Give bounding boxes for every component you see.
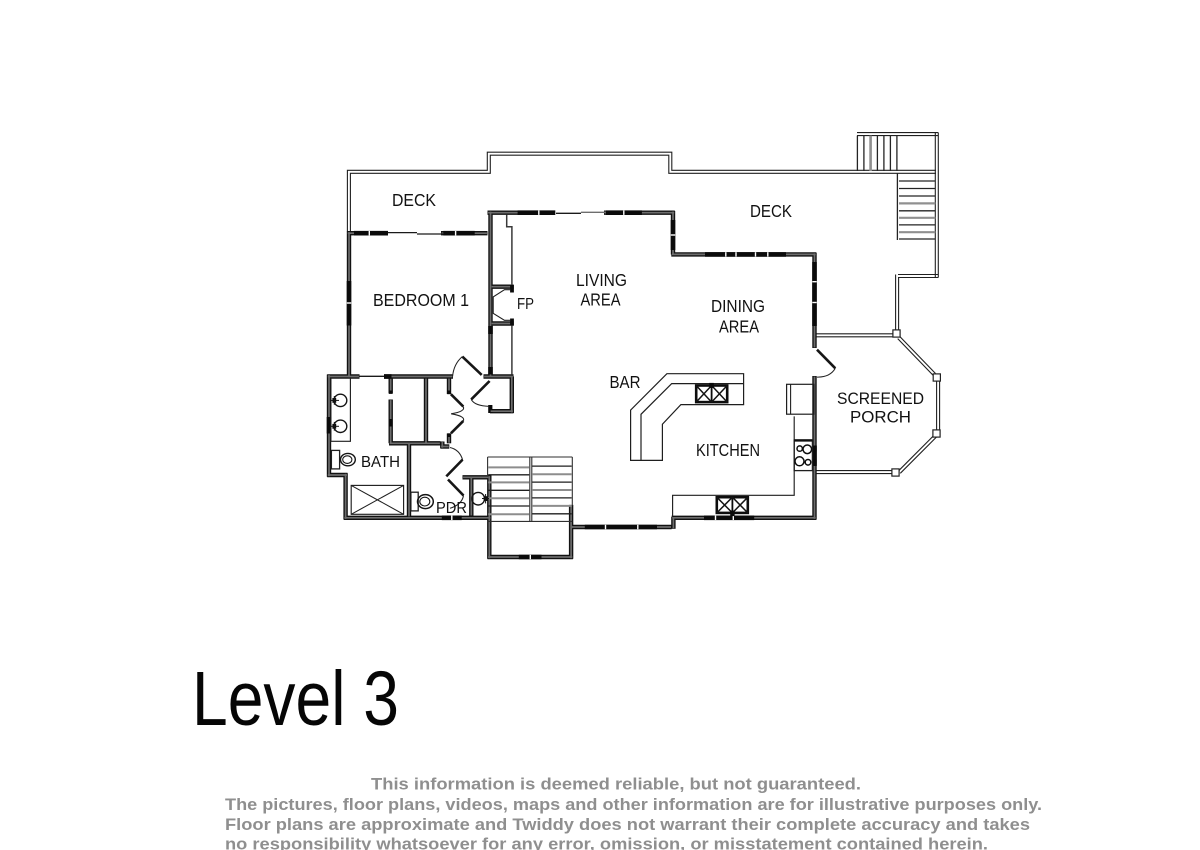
svg-text:FP: FP <box>517 296 534 313</box>
svg-text:This information is deemed rel: This information is deemed reliable, but… <box>371 776 861 794</box>
svg-text:DINING: DINING <box>711 296 765 316</box>
svg-text:BEDROOM 1: BEDROOM 1 <box>373 290 469 310</box>
svg-text:Floor plans are approximate an: Floor plans are approximate and Twiddy d… <box>225 816 1030 834</box>
svg-text:BATH: BATH <box>361 454 400 471</box>
svg-text:AREA: AREA <box>719 317 759 337</box>
svg-text:PORCH: PORCH <box>850 409 911 427</box>
svg-text:AREA: AREA <box>581 290 621 310</box>
svg-text:The pictures, floor plans, vid: The pictures, floor plans, videos, maps … <box>225 796 1042 814</box>
svg-text:no responsibility whatsoever f: no responsibility whatsoever for any err… <box>225 836 988 850</box>
svg-text:SCREENED: SCREENED <box>837 390 924 408</box>
svg-text:BAR: BAR <box>610 372 641 392</box>
svg-text:LIVING: LIVING <box>576 270 627 290</box>
svg-text:DECK: DECK <box>392 190 436 210</box>
svg-text:Level 3: Level 3 <box>192 656 399 742</box>
svg-text:DECK: DECK <box>750 201 792 221</box>
svg-text:KITCHEN: KITCHEN <box>696 440 760 460</box>
svg-text:PDR: PDR <box>436 500 467 517</box>
